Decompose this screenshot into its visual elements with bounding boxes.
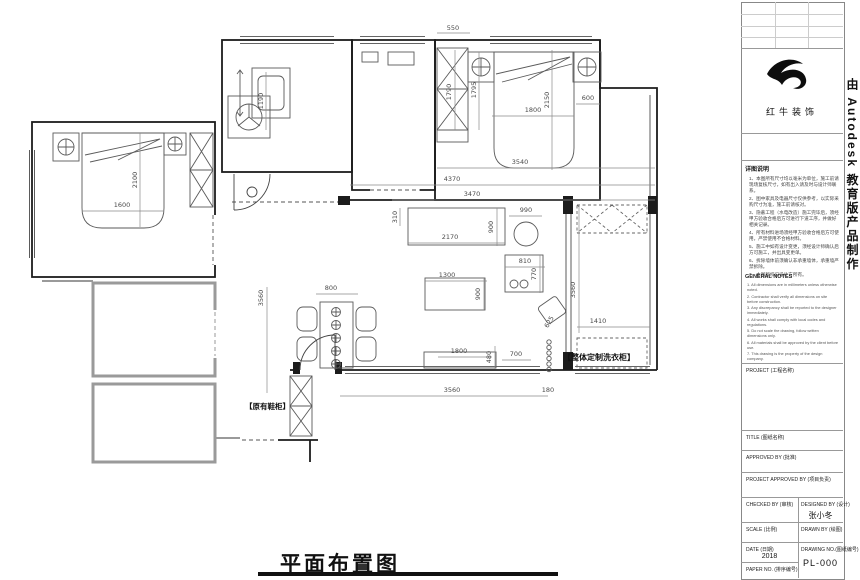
dim-label: 810: [519, 257, 531, 265]
dim-label: 180: [542, 386, 554, 394]
field-title: TITLE (图纸名称): [746, 434, 784, 441]
field-designed: DESIGNED BY (设计): [801, 501, 850, 508]
floor-plan: 550 1190 1790 1795 2150 1800 600 3540 43…: [0, 0, 740, 580]
notes-english: GENERAL NOTES 1. All dimensions are in m…: [745, 274, 839, 363]
dim-label: 1600: [114, 201, 131, 209]
dim-label: 2170: [442, 233, 459, 241]
field-checked: CHECKED BY (审核): [746, 501, 793, 508]
dim-label: 1790: [445, 84, 453, 101]
note-item: 1. All dimensions are in millimeters unl…: [747, 282, 839, 293]
walls: [32, 40, 657, 462]
wall-piers: [293, 196, 657, 374]
dim-label: 3540: [512, 158, 529, 166]
note-item: 2. Contractor shall verify all dimension…: [747, 294, 839, 305]
wardrobe-1: [190, 133, 213, 207]
gray-rooms: [42, 281, 240, 462]
bed-1: [82, 133, 164, 228]
company-logo: 红牛装饰: [741, 48, 843, 133]
dim-label: 2100: [131, 172, 139, 189]
shoe-cabinet: [290, 376, 312, 436]
note-item: 3、隐蔽工程（水电改造）施工完毕后，须经甲方验收合格后方可进行下道工序，并做好相…: [749, 210, 839, 228]
notes-chinese: 详图说明 1、本图所有尺寸均以毫米为单位，施工前请现场复核尺寸，如有出入请及时与…: [745, 164, 839, 280]
note-item: 2、图中家具及电器尺寸仅供参考，以实际采购尺寸为准，施工前请核对。: [749, 196, 839, 208]
round-table: [514, 222, 538, 246]
laundry-cabinet-label: 【整体定制洗衣柜】: [563, 352, 635, 362]
dim-label: 480: [485, 351, 493, 363]
field-scale: SCALE (比例): [746, 526, 777, 533]
dim-label: 990: [520, 206, 532, 214]
dim-label: 700: [510, 350, 522, 358]
bull-logo-icon: [760, 54, 824, 98]
dim-label: 3470: [464, 190, 481, 198]
field-approved: APPROVED BY (批准): [746, 454, 796, 461]
drawing-title-underline: [258, 572, 558, 576]
title-block: 红牛装饰 详图说明 1、本图所有尺寸均以毫米为单位，施工前请现场复核尺寸，如有出…: [740, 0, 859, 580]
dim-label: 1190: [257, 93, 265, 110]
field-date: DATE (日期): [746, 546, 774, 553]
dim-label: 1410: [590, 317, 607, 325]
dim-label: 550: [447, 24, 459, 32]
dim-label: 770: [530, 268, 538, 280]
company-name: 红牛装饰: [741, 105, 843, 118]
autodesk-watermark: 由 Autodesk 教育版产品制作: [844, 78, 860, 368]
note-item: 6. All materials shall be approved by th…: [747, 340, 839, 351]
nightstand: [573, 52, 601, 82]
nightstand: [164, 133, 186, 155]
date-value: 2018: [741, 553, 798, 560]
designer-name: 张小冬: [798, 510, 843, 521]
dimension-lines: [82, 33, 655, 396]
note-item: 5、施工中如有设计变更，须经设计师确认后方可施工，并出具变更单。: [749, 244, 839, 256]
hinge-circles: [547, 340, 551, 372]
nightstand: [53, 133, 79, 161]
drawing-sheet: 550 1190 1790 1795 2150 1800 600 3540 43…: [0, 0, 860, 580]
dim-label: 1300: [439, 271, 456, 279]
note-item: 5. Do not scale the drawing, follow writ…: [747, 328, 839, 339]
laundry-cabinets: [577, 205, 647, 368]
dim-label: 1800: [451, 347, 468, 355]
dim-label: 310: [391, 211, 399, 223]
shoe-cabinet-label: 【原有鞋柜】: [245, 401, 290, 411]
dimension-labels: 550 1190 1790 1795 2150 1800 600 3540 43…: [114, 24, 607, 394]
note-item: 7. This drawing is the property of the d…: [747, 351, 839, 362]
dim-label: 900: [487, 221, 495, 233]
field-project: PROJECT (工程名称): [746, 367, 794, 374]
dim-label: 1800: [525, 106, 542, 114]
note-item: 6、拆除墙体前须确认非承重墙体，承重墙严禁拆除。: [749, 258, 839, 270]
dim-label: 3560: [444, 386, 461, 394]
dim-label: 3560: [569, 282, 577, 299]
field-paper-no: PAPER NO. (排序编号): [746, 566, 798, 573]
note-item: 4. All works shall comply with local cod…: [747, 317, 839, 328]
nightstand: [468, 52, 494, 82]
dim-label: 2150: [543, 92, 551, 109]
dim-label: 625: [543, 315, 556, 330]
furniture: [53, 48, 601, 436]
note-item: 4、所有材料进场须经甲方验收合格后方可使用，严禁使用不合格材料。: [749, 230, 839, 242]
notes-title: 详图说明: [745, 164, 839, 173]
note-item: 1、本图所有尺寸均以毫米为单位，施工前请现场复核尺寸，如有出入请及时与设计师联系…: [749, 176, 839, 194]
field-drawn: DRAWN BY (绘图): [801, 526, 842, 533]
dim-label: 4370: [444, 175, 461, 183]
field-drawing-no: DRAWING NO.(图纸编号): [801, 546, 859, 553]
dim-label: 3560: [257, 290, 265, 307]
dining-set: [297, 302, 376, 369]
general-notes-title: GENERAL NOTES: [745, 274, 839, 280]
dim-label: 800: [325, 284, 337, 292]
dim-label: 1795: [470, 82, 478, 99]
field-project-approved: PROJECT APPROVED BY (项目负责): [746, 476, 831, 483]
dim-label: 900: [474, 288, 482, 300]
drawing-no-value: PL-000: [798, 558, 843, 568]
note-item: 3. Any discrepancy shall be reported to …: [747, 305, 839, 316]
dim-label: 600: [582, 94, 594, 102]
